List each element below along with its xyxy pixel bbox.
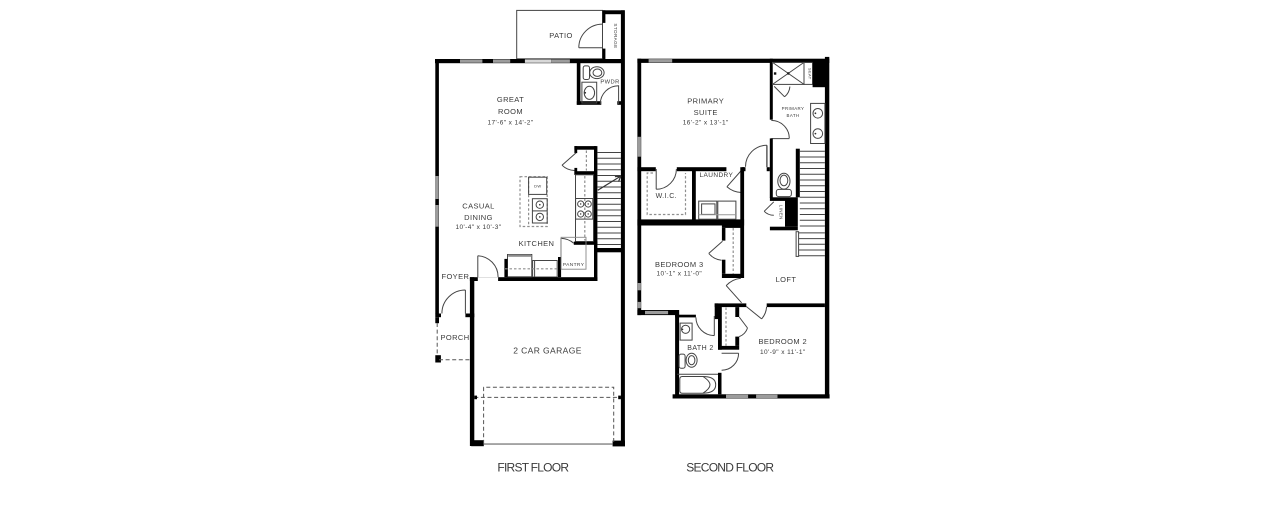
svg-text:SEAT: SEAT (808, 68, 813, 80)
svg-text:17'-6" x 14'-2": 17'-6" x 14'-2" (488, 120, 534, 127)
svg-text:PRIMARY: PRIMARY (782, 106, 805, 111)
svg-text:LAUNDRY: LAUNDRY (700, 172, 734, 179)
svg-text:BATH 2: BATH 2 (687, 345, 713, 352)
svg-text:SUITE: SUITE (694, 108, 718, 117)
svg-text:SECOND FLOOR: SECOND FLOOR (686, 460, 774, 474)
svg-text:DINING: DINING (464, 213, 493, 222)
svg-text:LOFT: LOFT (776, 275, 797, 284)
svg-text:PRIMARY: PRIMARY (687, 97, 724, 106)
svg-text:2 CAR GARAGE: 2 CAR GARAGE (513, 346, 582, 356)
svg-text:STORAGE: STORAGE (613, 23, 618, 48)
svg-text:FOYER: FOYER (441, 272, 469, 281)
svg-text:BEDROOM 3: BEDROOM 3 (655, 260, 704, 269)
svg-text:16'-2" x 13'-1": 16'-2" x 13'-1" (683, 120, 729, 127)
svg-text:KITCHEN: KITCHEN (519, 239, 555, 248)
svg-text:10'-9" x 11'-1": 10'-9" x 11'-1" (760, 349, 806, 356)
svg-text:ROOM: ROOM (498, 107, 523, 116)
svg-text:10'-4" x 10'-3": 10'-4" x 10'-3" (456, 224, 502, 231)
svg-text:GREAT: GREAT (497, 95, 524, 104)
svg-text:DW: DW (534, 184, 541, 189)
svg-text:FIRST FLOOR: FIRST FLOOR (497, 460, 569, 474)
svg-text:PATIO: PATIO (549, 31, 572, 40)
svg-text:LINEN: LINEN (779, 205, 784, 220)
svg-text:BEDROOM 2: BEDROOM 2 (758, 337, 807, 346)
svg-text:W.I.C.: W.I.C. (656, 193, 677, 200)
svg-text:10'-1" x 11'-0": 10'-1" x 11'-0" (657, 271, 703, 278)
svg-text:BATH: BATH (787, 113, 800, 118)
svg-text:PANTRY: PANTRY (563, 262, 585, 268)
svg-text:CASUAL: CASUAL (462, 202, 494, 211)
svg-text:PORCH: PORCH (440, 333, 469, 342)
svg-text:PWDR: PWDR (600, 80, 619, 86)
